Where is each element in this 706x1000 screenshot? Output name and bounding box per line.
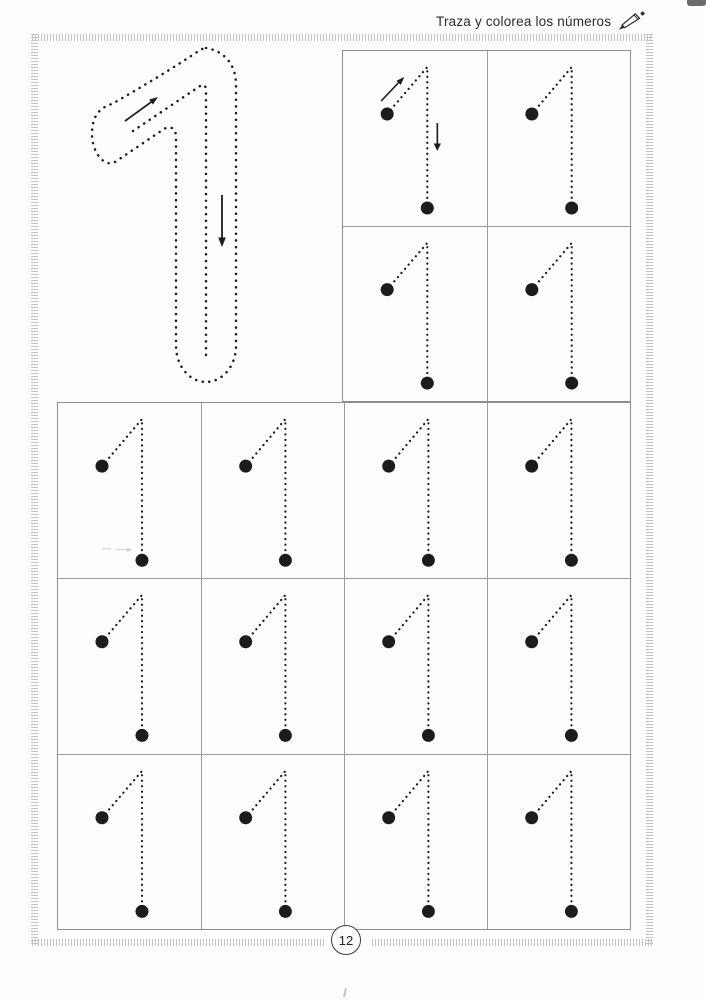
- dotted-numeral-1: [345, 755, 487, 929]
- trace-path-dotted: [387, 243, 427, 383]
- pencil-icon: [617, 10, 646, 32]
- tracing-cell: [344, 754, 487, 929]
- end-dot: [565, 554, 578, 567]
- tracing-cell: [487, 51, 631, 226]
- scan-artifact-corner: [687, 0, 706, 6]
- trace-path-dotted: [389, 771, 429, 911]
- tracing-cell: [58, 754, 201, 929]
- start-dot: [525, 811, 538, 824]
- end-dot: [279, 554, 292, 567]
- trace-path-dotted: [531, 67, 571, 208]
- start-dot: [239, 460, 252, 473]
- page-number-badge: 12: [331, 925, 361, 955]
- decorative-border-left: [31, 34, 38, 945]
- scan-artifact-bottom: [343, 988, 347, 997]
- tracing-cell: [343, 226, 487, 401]
- start-dot: [96, 811, 109, 824]
- tracing-cell: [201, 754, 344, 929]
- start-dot: [381, 108, 394, 121]
- end-dot: [421, 377, 434, 390]
- trace-path-dotted: [102, 771, 142, 911]
- end-dot: [565, 202, 578, 215]
- trace-path-dotted: [246, 771, 286, 911]
- dotted-numeral-1: [343, 51, 487, 226]
- end-dot: [565, 377, 578, 390]
- tracing-cell: [201, 578, 344, 753]
- dotted-numeral-1: [345, 579, 487, 753]
- numeral-outline-dotted: [92, 48, 236, 382]
- end-dot: [136, 905, 149, 918]
- end-dot: [136, 554, 149, 567]
- start-dot: [96, 636, 109, 649]
- tracing-cell: [344, 403, 487, 578]
- decorative-border-bottom-left: [32, 939, 326, 946]
- start-dot: [382, 811, 395, 824]
- tracing-cell: [201, 403, 344, 578]
- trace-path-dotted: [102, 595, 142, 735]
- end-dot: [422, 554, 435, 567]
- start-dot: [525, 460, 538, 473]
- end-dot: [279, 729, 292, 742]
- dotted-numeral-1: [488, 579, 630, 753]
- dotted-numeral-1: [58, 403, 201, 578]
- tracing-cell: [487, 403, 630, 578]
- trace-path-dotted: [102, 419, 142, 560]
- start-dot: [239, 636, 252, 649]
- start-dot: [96, 460, 109, 473]
- stroke-direction-arrows: [125, 97, 226, 247]
- end-dot: [422, 905, 435, 918]
- page-header: Traza y colorea los números: [436, 11, 646, 31]
- numeral-model: [70, 40, 250, 400]
- start-dot: [382, 460, 395, 473]
- decorative-border-right: [646, 34, 653, 945]
- practice-grid-bottom: [57, 402, 631, 930]
- trace-path-dotted: [246, 419, 286, 560]
- dotted-numeral-1: [488, 403, 630, 578]
- worksheet-page: Traza y colorea los números 12: [0, 0, 706, 1000]
- dotted-numeral-1: [488, 51, 631, 226]
- end-dot: [279, 905, 292, 918]
- numeral-inner-channel-dotted: [133, 85, 206, 355]
- start-dot: [382, 636, 395, 649]
- start-dot: [525, 283, 538, 296]
- dotted-numeral-1: [58, 755, 201, 929]
- faint-print-artifact: [102, 548, 132, 552]
- tracing-cell: [344, 578, 487, 753]
- tracing-cell: [58, 578, 201, 753]
- page-title: Traza y colorea los números: [436, 14, 611, 29]
- trace-path-dotted: [532, 771, 572, 911]
- trace-path-dotted: [389, 419, 429, 560]
- end-dot: [421, 202, 434, 215]
- tracing-cell: [487, 226, 631, 401]
- page-number: 12: [339, 933, 353, 948]
- trace-path-dotted: [532, 595, 572, 735]
- practice-grid-top: [342, 50, 631, 402]
- start-dot: [525, 636, 538, 649]
- trace-path-dotted: [531, 243, 571, 383]
- end-dot: [565, 905, 578, 918]
- dotted-numeral-1: [202, 755, 344, 929]
- start-dot: [525, 108, 538, 121]
- dotted-numeral-1: [58, 579, 201, 753]
- tracing-cell: [343, 51, 487, 226]
- dotted-numeral-1: [488, 755, 630, 929]
- start-dot: [381, 283, 394, 296]
- dotted-numeral-1: [345, 403, 487, 578]
- end-dot: [565, 729, 578, 742]
- trace-path-dotted: [246, 595, 286, 735]
- end-dot: [422, 729, 435, 742]
- trace-path-dotted: [532, 419, 572, 560]
- tracing-cell: [487, 578, 630, 753]
- dotted-numeral-1: [202, 579, 344, 753]
- end-dot: [136, 729, 149, 742]
- start-dot: [239, 811, 252, 824]
- dotted-numeral-1: [343, 227, 487, 401]
- dotted-numeral-1: [488, 227, 631, 401]
- tracing-cell: [487, 754, 630, 929]
- tracing-cell: [58, 403, 201, 578]
- decorative-border-bottom-right: [372, 939, 652, 946]
- dotted-numeral-1: [202, 403, 344, 578]
- trace-path-dotted: [389, 595, 429, 735]
